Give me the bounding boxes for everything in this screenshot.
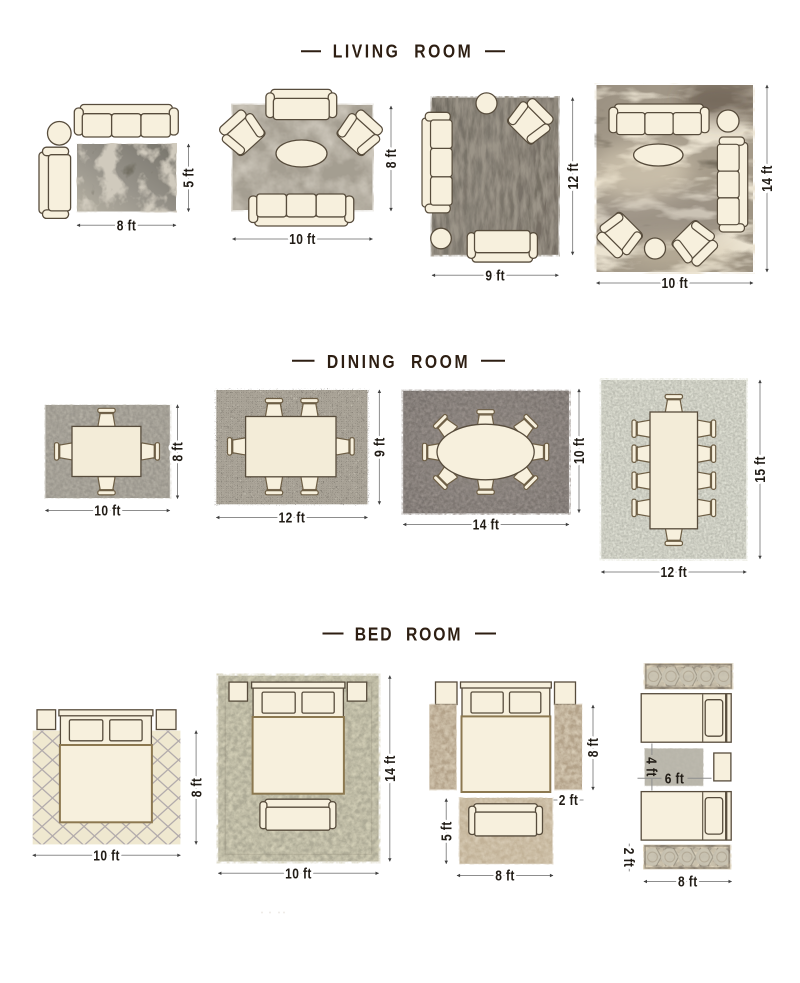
svg-text:8 ft: 8 ft — [678, 873, 698, 890]
svg-text:4 ft: 4 ft — [643, 757, 660, 777]
svg-text:14 ft: 14 ft — [473, 516, 500, 533]
svg-text:8 ft: 8 ft — [188, 778, 205, 798]
svg-text:2 ft: 2 ft — [621, 848, 638, 868]
svg-text:14 ft: 14 ft — [759, 165, 776, 192]
svg-text:LIVING ROOM: LIVING ROOM — [333, 40, 474, 62]
svg-text:8 ft: 8 ft — [495, 867, 515, 884]
svg-text:10 ft: 10 ft — [571, 437, 588, 464]
svg-text:12 ft: 12 ft — [279, 509, 306, 526]
svg-text:9 ft: 9 ft — [485, 267, 505, 284]
svg-text:9 ft: 9 ft — [371, 437, 388, 457]
svg-text:10 ft: 10 ft — [94, 502, 121, 519]
svg-text:8 ft: 8 ft — [383, 149, 400, 169]
svg-text:14 ft: 14 ft — [382, 755, 399, 782]
svg-text:5 ft: 5 ft — [438, 821, 455, 841]
svg-text:5 ft: 5 ft — [180, 168, 197, 188]
svg-text:15 ft: 15 ft — [752, 456, 769, 483]
svg-text:8 ft: 8 ft — [585, 738, 602, 758]
svg-text:8 ft: 8 ft — [117, 217, 137, 234]
svg-text:BED ROOM: BED ROOM — [355, 623, 463, 645]
svg-text:DINING ROOM: DINING ROOM — [327, 351, 470, 373]
svg-text:2 ft: 2 ft — [559, 792, 579, 809]
svg-text:10 ft: 10 ft — [289, 231, 316, 248]
svg-text:6 ft: 6 ft — [665, 770, 685, 787]
svg-text:8 ft: 8 ft — [169, 442, 186, 462]
svg-text:10 ft: 10 ft — [93, 847, 120, 864]
svg-text:10 ft: 10 ft — [661, 275, 688, 292]
svg-text:12 ft: 12 ft — [660, 564, 687, 581]
svg-text:10 ft: 10 ft — [285, 865, 312, 882]
svg-text:12 ft: 12 ft — [565, 163, 582, 190]
